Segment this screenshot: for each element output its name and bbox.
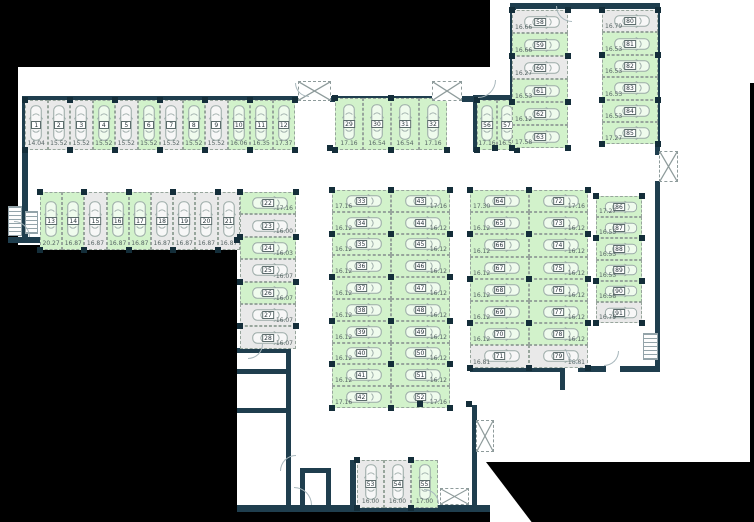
stall-area: 16.12	[335, 247, 352, 253]
parking-stall-19[interactable]: 1916.87	[173, 192, 195, 250]
structural-pillar	[593, 278, 599, 284]
stall-number: 2	[54, 121, 64, 129]
structural-pillar	[329, 231, 335, 237]
structural-pillar	[593, 235, 599, 241]
stall-area: 16.12	[335, 335, 352, 341]
parking-stall-67[interactable]: 6716.12	[470, 257, 529, 279]
parking-stall-20[interactable]: 2016.87	[195, 192, 217, 250]
stall-area: 16.87	[196, 241, 216, 247]
parking-stall-81[interactable]: 8116.53	[602, 32, 658, 54]
staircase-icon	[643, 333, 658, 360]
parking-stall-71[interactable]: 7116.81	[470, 345, 529, 367]
structural-pillar	[37, 247, 43, 253]
stall-number: 68	[494, 286, 506, 294]
stall-area: 16.12	[568, 226, 585, 232]
stall-number: 36	[356, 262, 368, 270]
parking-stall-26[interactable]: 2616.07	[240, 282, 296, 304]
structural-pillar	[388, 274, 394, 280]
stall-area: 16.12	[335, 226, 352, 232]
stall-area: 17.16	[430, 400, 447, 406]
stall-number: 27	[262, 311, 274, 319]
parking-stall-90[interactable]: 9016.58	[596, 281, 642, 302]
stall-number: 30	[371, 120, 383, 128]
structural-pillar	[565, 53, 571, 59]
structural-pillar	[327, 145, 333, 151]
parking-stall-43[interactable]: 4317.16	[391, 190, 450, 212]
parking-stall-14[interactable]: 1416.87	[62, 192, 84, 250]
stall-number: 42	[356, 393, 368, 401]
parking-stall-24[interactable]: 2416.03	[240, 237, 296, 259]
stall-area: 16.12	[473, 271, 490, 277]
parking-stall-37[interactable]: 3716.12	[332, 277, 391, 299]
stall-area: 16.06	[229, 141, 250, 147]
structural-pillar	[408, 457, 414, 463]
stall-number: 40	[356, 349, 368, 357]
stall-area: 16.12	[430, 269, 447, 275]
stall-number: 75	[553, 264, 565, 272]
parking-stall-44[interactable]: 4416.12	[391, 212, 450, 234]
door-swing-icon	[294, 487, 312, 505]
stall-number: 16	[112, 217, 124, 225]
structural-pillar	[293, 323, 299, 329]
stall-number: 67	[494, 264, 506, 272]
structural-pillar	[639, 320, 645, 326]
parking-stall-4[interactable]: 415.52	[93, 100, 116, 150]
stall-number: 9	[211, 121, 221, 129]
stall-area: 16.12	[335, 291, 352, 297]
parking-stall-11[interactable]: 1116.35	[250, 100, 273, 150]
stall-number: 37	[356, 284, 368, 292]
stall-area: 16.53	[605, 69, 622, 75]
parking-stall-9[interactable]: 915.52	[205, 100, 228, 150]
stall-number: 82	[624, 62, 636, 70]
stall-area: 16.07	[276, 341, 293, 347]
wall	[510, 3, 660, 9]
structural-pillar	[655, 7, 661, 13]
parking-stall-39[interactable]: 3916.12	[332, 321, 391, 343]
stall-area: 16.54	[364, 141, 390, 147]
wall	[237, 369, 288, 374]
stall-number: 53	[365, 480, 377, 488]
stall-number: 83	[624, 84, 636, 92]
stall-area: 15.52	[116, 141, 137, 147]
stall-area: 15.52	[184, 141, 205, 147]
structural-pillar	[388, 361, 394, 367]
wall	[350, 460, 356, 510]
stall-number: 47	[415, 284, 427, 292]
parking-stall-1[interactable]: 114.04	[25, 100, 48, 150]
stall-number: 56	[481, 121, 493, 129]
parking-stall-88[interactable]: 8816.53	[596, 238, 642, 259]
structural-pillar	[526, 320, 532, 326]
parking-stall-56[interactable]: 5617.16	[477, 100, 497, 150]
stall-number: 49	[415, 328, 427, 336]
exterior-mask	[0, 0, 490, 67]
parking-stall-87[interactable]: 8716.53	[596, 217, 642, 238]
stall-number: 58	[534, 18, 546, 26]
structural-pillar	[293, 279, 299, 285]
parking-stall-49[interactable]: 4916.12	[391, 321, 450, 343]
parking-stall-91[interactable]: 9116.79	[596, 302, 642, 323]
structural-pillar	[67, 147, 73, 153]
parking-stall-2[interactable]: 215.52	[48, 100, 71, 150]
parking-stall-29[interactable]: 2917.16	[335, 98, 363, 150]
stall-area: 16.07	[276, 318, 293, 324]
parking-stall-12[interactable]: 1217.37	[273, 100, 296, 150]
structural-pillar	[585, 231, 591, 237]
structural-pillar	[112, 97, 118, 103]
structural-pillar	[215, 189, 221, 195]
structural-pillar	[157, 97, 163, 103]
stall-area: 16.12	[335, 356, 352, 362]
stall-number: 34	[356, 219, 368, 227]
structural-pillar	[293, 189, 299, 195]
parking-stall-18[interactable]: 1816.87	[151, 192, 173, 250]
structural-pillar	[170, 247, 176, 253]
stall-area: 16.87	[152, 241, 172, 247]
stall-number: 14	[67, 217, 79, 225]
parking-stall-34[interactable]: 3416.12	[332, 212, 391, 234]
structural-pillar	[126, 189, 132, 195]
structural-pillar	[467, 320, 473, 326]
parking-stall-83[interactable]: 8316.53	[602, 77, 658, 99]
structural-pillar	[202, 147, 208, 153]
parking-stall-13[interactable]: 1320.27	[40, 192, 62, 250]
parking-stall-48[interactable]: 4816.12	[391, 299, 450, 321]
parking-stall-16[interactable]: 1616.87	[107, 192, 129, 250]
parking-stall-70[interactable]: 7016.12	[470, 323, 529, 345]
stall-area: 15.52	[161, 141, 182, 147]
structural-pillar	[332, 95, 338, 101]
structural-pillar	[234, 237, 240, 243]
structural-pillar	[509, 53, 515, 59]
stall-number: 70	[494, 330, 506, 338]
parking-stall-54[interactable]: 5416.00	[384, 460, 411, 508]
parking-stall-65[interactable]: 6516.12	[470, 212, 529, 234]
stall-area: 17.16	[336, 141, 362, 147]
stall-number: 29	[343, 120, 355, 128]
stall-number: 15	[90, 217, 102, 225]
stall-number: 3	[76, 121, 86, 129]
stall-area: 17.27	[605, 136, 622, 142]
ventilation-shaft-icon	[432, 81, 462, 101]
parking-stall-73[interactable]: 7316.12	[529, 212, 588, 234]
structural-pillar	[467, 276, 473, 282]
structural-pillar	[293, 234, 299, 240]
parking-stall-51[interactable]: 5116.12	[391, 364, 450, 386]
stall-number: 39	[356, 328, 368, 336]
stall-area: 16.12	[430, 226, 447, 232]
structural-pillar	[526, 276, 532, 282]
structural-pillar	[388, 231, 394, 237]
structural-pillar	[237, 323, 243, 329]
stall-number: 33	[356, 197, 368, 205]
parking-stall-42[interactable]: 4217.16	[332, 386, 391, 408]
stall-number: 76	[553, 286, 565, 294]
structural-pillar	[237, 279, 243, 285]
structural-pillar	[388, 405, 394, 411]
stall-area: 16.12	[430, 247, 447, 253]
stall-number: 79	[553, 352, 565, 360]
parking-stall-15[interactable]: 1516.87	[84, 192, 106, 250]
parking-stall-46[interactable]: 4616.12	[391, 255, 450, 277]
stall-number: 1	[31, 121, 41, 129]
stall-number: 74	[553, 241, 565, 249]
structural-pillar	[112, 147, 118, 153]
stall-area: 16.53	[599, 273, 616, 279]
structural-pillar	[408, 505, 414, 511]
parking-stall-33[interactable]: 3317.16	[332, 190, 391, 212]
parking-stall-8[interactable]: 815.52	[183, 100, 206, 150]
parking-stall-69[interactable]: 6916.12	[470, 301, 529, 323]
exterior-mask	[486, 462, 754, 522]
exterior-mask	[237, 512, 490, 522]
structural-pillar	[247, 97, 253, 103]
structural-pillar	[329, 361, 335, 367]
parking-stall-72[interactable]: 7217.16	[529, 190, 588, 212]
stall-area: 16.54	[392, 141, 418, 147]
exterior-mask	[0, 245, 237, 522]
stall-number: 73	[553, 219, 565, 227]
stall-number: 80	[624, 17, 636, 25]
stall-area: 16.00	[358, 499, 383, 505]
parking-stall-41[interactable]: 4116.12	[332, 364, 391, 386]
parking-stall-82[interactable]: 8216.53	[602, 55, 658, 77]
stall-area: 16.53	[605, 47, 622, 53]
structural-pillar	[447, 318, 453, 324]
parking-stall-50[interactable]: 5016.12	[391, 343, 450, 365]
stall-area: 17.58	[515, 140, 532, 146]
structural-pillar	[655, 97, 661, 103]
structural-pillar	[526, 187, 532, 193]
stall-number: 21	[223, 217, 235, 225]
stall-number: 26	[262, 289, 274, 297]
stall-area: 16.12	[430, 378, 447, 384]
parking-stall-25[interactable]: 2516.07	[240, 259, 296, 281]
stall-number: 48	[415, 306, 427, 314]
stall-number: 85	[624, 129, 636, 137]
structural-pillar	[81, 247, 87, 253]
parking-stall-17[interactable]: 1716.87	[129, 192, 151, 250]
parking-stall-75[interactable]: 7516.12	[529, 257, 588, 279]
stall-number: 61	[534, 87, 546, 95]
stall-number: 71	[494, 352, 506, 360]
structural-pillar	[466, 401, 472, 407]
stall-area: 16.66	[515, 25, 532, 31]
parking-stall-27[interactable]: 2716.07	[240, 304, 296, 326]
stall-area: 15.52	[139, 141, 160, 147]
parking-stall-35[interactable]: 3516.12	[332, 234, 391, 256]
structural-pillar	[467, 365, 473, 371]
stall-number: 65	[494, 219, 506, 227]
stall-number: 59	[534, 41, 546, 49]
structural-pillar	[202, 97, 208, 103]
stall-area: 16.12	[473, 249, 490, 255]
stall-area: 16.12	[335, 378, 352, 384]
structural-pillar	[565, 99, 571, 105]
stall-area: 16.58	[599, 294, 616, 300]
stall-area: 16.53	[605, 92, 622, 98]
stall-number: 32	[427, 120, 439, 128]
structural-pillar	[447, 231, 453, 237]
stall-number: 72	[553, 197, 565, 205]
stall-number: 64	[494, 197, 506, 205]
stall-number: 63	[534, 133, 546, 141]
stall-area: 16.12	[568, 337, 585, 343]
structural-pillar	[81, 189, 87, 195]
parking-stall-7[interactable]: 715.52	[160, 100, 183, 150]
wall	[560, 366, 565, 390]
stall-number: 23	[262, 222, 274, 230]
parking-stall-45[interactable]: 4516.12	[391, 234, 450, 256]
stall-area: 16.12	[473, 337, 490, 343]
stall-area: 16.00	[276, 229, 293, 235]
stall-area: 17.16	[568, 204, 585, 210]
stall-area: 16.07	[276, 274, 293, 280]
stall-number: 52	[415, 393, 427, 401]
stall-area: 17.16	[420, 141, 446, 147]
parking-stall-40[interactable]: 4016.12	[332, 343, 391, 365]
structural-pillar	[526, 231, 532, 237]
structural-pillar	[447, 274, 453, 280]
stall-number: 45	[415, 240, 427, 248]
exterior-mask	[750, 83, 754, 467]
stall-area: 16.81	[473, 360, 490, 366]
stall-number: 35	[356, 240, 368, 248]
stall-number: 24	[262, 244, 274, 252]
parking-stall-86[interactable]: 8617.27	[596, 196, 642, 217]
parking-stall-32[interactable]: 3217.16	[419, 98, 447, 150]
stall-number: 18	[156, 217, 168, 225]
stall-area: 17.16	[430, 204, 447, 210]
structural-pillar	[474, 147, 480, 153]
stall-number: 10	[233, 121, 245, 129]
stall-number: 8	[189, 121, 199, 129]
stall-number: 31	[399, 120, 411, 128]
parking-stall-31[interactable]: 3116.54	[391, 98, 419, 150]
stall-number: 84	[624, 107, 636, 115]
parking-stall-84[interactable]: 8416.53	[602, 100, 658, 122]
structural-pillar	[447, 361, 453, 367]
structural-pillar	[170, 189, 176, 195]
structural-pillar	[492, 145, 498, 151]
structural-pillar	[388, 147, 394, 153]
structural-pillar	[467, 231, 473, 237]
parking-stall-10[interactable]: 1016.06	[228, 100, 251, 150]
stall-number: 44	[415, 219, 427, 227]
stall-number: 41	[356, 371, 368, 379]
parking-stall-85[interactable]: 8517.27	[602, 122, 658, 144]
structural-pillar	[639, 278, 645, 284]
structural-pillar	[126, 247, 132, 253]
door-swing-icon	[604, 351, 619, 366]
parking-stall-30[interactable]: 3016.54	[363, 98, 391, 150]
parking-stall-60[interactable]: 6016.27	[512, 56, 568, 79]
structural-pillar	[509, 7, 515, 13]
parking-stall-89[interactable]: 8916.53	[596, 260, 642, 281]
stall-number: 5	[121, 121, 131, 129]
structural-pillar	[447, 405, 453, 411]
parking-stall-36[interactable]: 3616.12	[332, 255, 391, 277]
structural-pillar	[639, 193, 645, 199]
structural-pillar	[329, 318, 335, 324]
structural-pillar	[247, 147, 253, 153]
structural-pillar	[585, 276, 591, 282]
stall-area: 16.12	[430, 335, 447, 341]
structural-pillar	[215, 247, 221, 253]
parking-stall-64[interactable]: 6417.30	[470, 190, 529, 212]
parking-stall-61[interactable]: 6116.53	[512, 79, 568, 102]
stall-area: 17.30	[473, 204, 490, 210]
stall-area: 16.53	[599, 252, 616, 258]
stall-area: 16.12	[568, 315, 585, 321]
structural-pillar	[655, 52, 661, 58]
wall	[8, 237, 44, 243]
stall-area: 16.12	[515, 117, 532, 123]
parking-stall-22[interactable]: 2217.16	[240, 192, 296, 214]
parking-stall-68[interactable]: 6816.12	[470, 279, 529, 301]
parking-stall-80[interactable]: 8016.79	[602, 10, 658, 32]
stall-area: 15.52	[94, 141, 115, 147]
parking-stall-77[interactable]: 7716.12	[529, 301, 588, 323]
parking-stall-47[interactable]: 4716.12	[391, 277, 450, 299]
structural-pillar	[37, 189, 43, 195]
parking-stall-63[interactable]: 6317.58	[512, 125, 568, 148]
stall-number: 6	[144, 121, 154, 129]
parking-stall-23[interactable]: 2316.00	[240, 214, 296, 236]
stall-number: 25	[262, 266, 274, 274]
parking-stall-59[interactable]: 5916.66	[512, 33, 568, 56]
stall-area: 16.27	[515, 71, 532, 77]
door-swing-icon	[280, 455, 296, 471]
parking-stall-74[interactable]: 7416.12	[529, 234, 588, 256]
structural-pillar	[593, 320, 599, 326]
stall-area: 16.87	[130, 241, 150, 247]
parking-stall-3[interactable]: 315.52	[70, 100, 93, 150]
stall-area: 16.87	[63, 241, 83, 247]
parking-stall-76[interactable]: 7616.12	[529, 279, 588, 301]
stall-area: 16.12	[430, 313, 447, 319]
stall-number: 69	[494, 308, 506, 316]
structural-pillar	[639, 235, 645, 241]
stall-area: 16.87	[108, 241, 128, 247]
parking-stall-53[interactable]: 5316.00	[357, 460, 384, 508]
stall-number: 54	[392, 480, 404, 488]
stall-number: 60	[534, 64, 546, 72]
stall-number: 51	[415, 371, 427, 379]
structural-pillar	[447, 187, 453, 193]
stall-number: 81	[624, 40, 636, 48]
stall-area: 17.16	[335, 400, 352, 406]
parking-stall-6[interactable]: 615.52	[138, 100, 161, 150]
parking-stall-66[interactable]: 6616.12	[470, 234, 529, 256]
stall-area: 16.12	[430, 291, 447, 297]
structural-pillar	[509, 145, 515, 151]
stall-area: 17.16	[276, 206, 293, 212]
structural-pillar	[237, 189, 243, 195]
parking-stall-5[interactable]: 515.52	[115, 100, 138, 150]
parking-stall-38[interactable]: 3816.12	[332, 299, 391, 321]
structural-pillar	[599, 141, 605, 147]
parking-stall-78[interactable]: 7816.12	[529, 323, 588, 345]
structural-pillar	[599, 52, 605, 58]
parking-stall-62[interactable]: 6216.12	[512, 102, 568, 125]
stall-number: 17	[134, 217, 146, 225]
stall-area: 16.12	[473, 226, 490, 232]
structural-pillar	[655, 141, 661, 147]
stall-number: 7	[166, 121, 176, 129]
structural-pillar	[388, 187, 394, 193]
